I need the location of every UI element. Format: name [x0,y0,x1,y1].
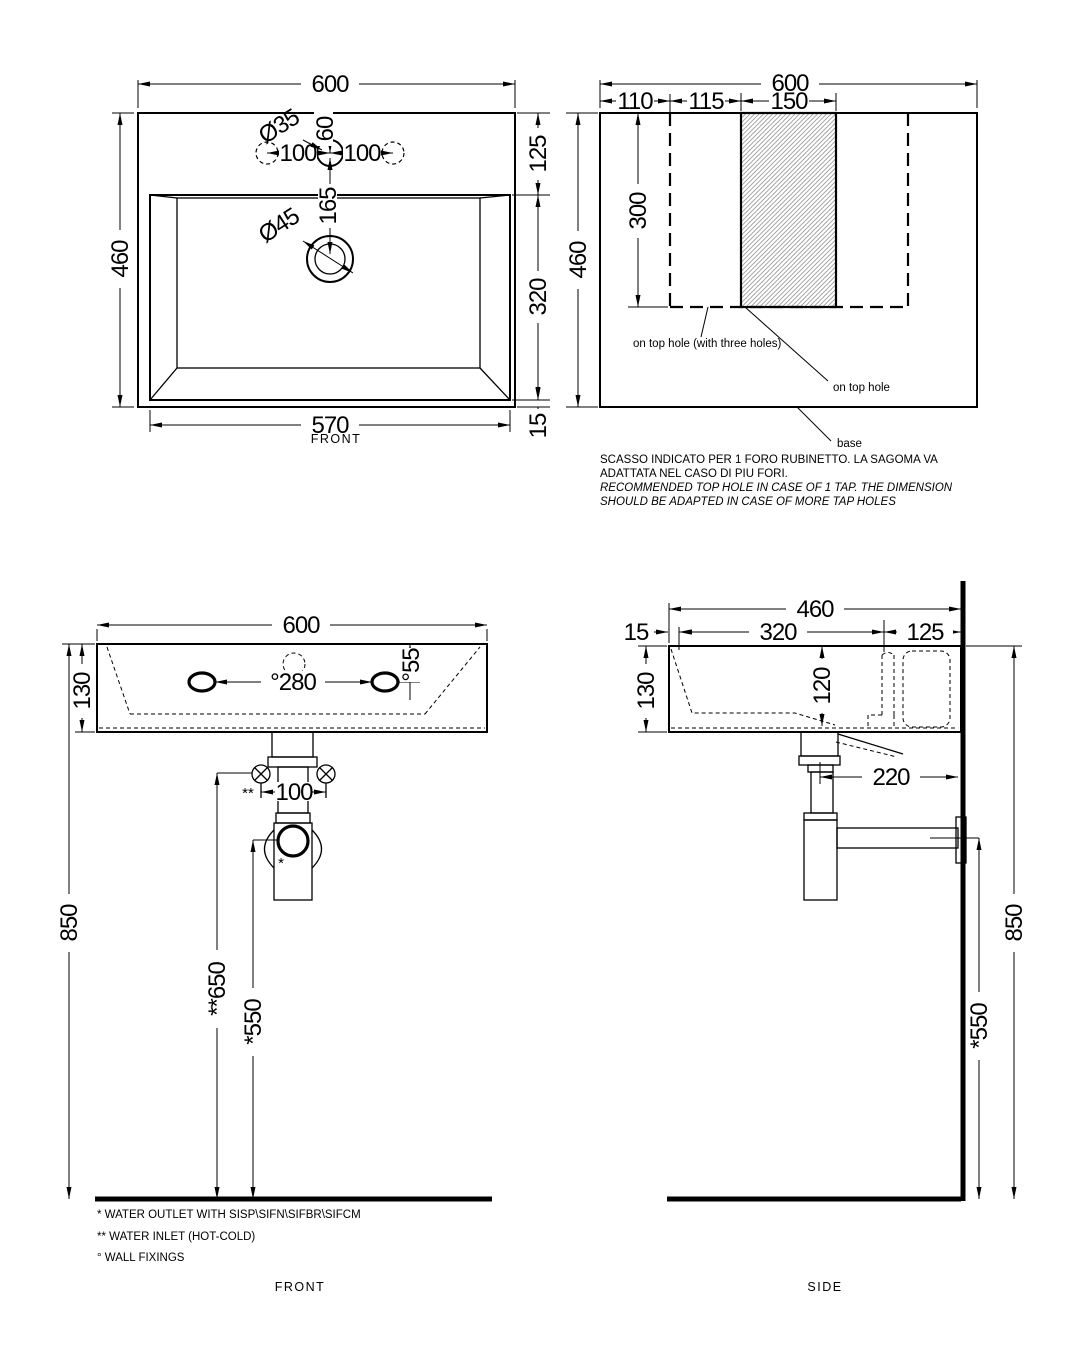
front-dim-outlet-height: *550 [240,999,267,1045]
side-dim-bowl-depth: 120 [809,667,836,705]
plan-label-drain-diameter: Ø45 [254,202,305,248]
front-outlet-marker: * [278,855,284,872]
template-label-three-holes: on top hole (with three holes) [633,338,781,350]
plan-dim-right-bottom: 15 [525,413,552,438]
front-fixing-hole-left [189,673,215,691]
template-label-one-hole: on top hole [833,382,890,394]
technical-drawing-sheet: 600 460 125 320 15 570 FRONT 60 165 [0,0,1080,1350]
template-dim-left: 110 [617,88,653,115]
washbasin-drawing: 600 460 125 320 15 570 FRONT 60 165 [0,0,1080,1350]
front-dim-fixing-depth: °55 [398,648,425,682]
plan-caption: FRONT [311,432,362,446]
front-inlet-marker: ** [242,785,254,802]
side-dim-outlet-wall: 220 [872,764,910,791]
front-note-fixings: ° WALL FIXINGS [97,1252,185,1264]
side-dim-outlet-height: *550 [966,1003,993,1049]
front-water-outlet [278,826,308,856]
side-dim-front-rim: 15 [624,619,649,646]
front-dim-total-height: 850 [56,904,83,942]
side-dim-depth: 460 [796,596,834,623]
template-view: 600 110 115 150 460 300 on top hole (wit… [565,70,977,508]
front-trap [265,732,322,900]
front-caption: FRONT [275,1280,326,1294]
side-dim-bowl: 320 [759,619,797,646]
front-dim-width: 600 [282,612,320,639]
plan-dim-tap-spacing-right: 100 [343,140,381,167]
template-dim-hole: 150 [770,88,808,115]
template-note-en-2: SHOULD BE ADAPTED IN CASE OF MORE TAP HO… [600,496,896,508]
side-caption: SIDE [807,1280,842,1294]
side-rear-channel-hidden [903,651,950,727]
template-note-it-1: SCASSO INDICATO PER 1 FORO RUBINETTO. LA… [600,454,938,466]
plan-dim-width: 600 [311,71,349,98]
side-dim-total-height: 850 [1001,904,1028,942]
side-view: 460 15 320 125 130 120 [624,581,1028,1294]
template-dim-cutout-height: 300 [625,192,652,230]
side-trap [799,732,966,900]
side-dim-back: 125 [906,619,944,646]
plan-dim-tap-drain: 165 [315,187,342,225]
template-note-it-2: ADATTATA NEL CASO DI PIU FORI. [600,468,788,480]
side-tap-hole-hidden [868,653,894,728]
front-note-outlet: * WATER OUTLET WITH SISP\SIFN\SIFBR\SIFC… [97,1209,361,1221]
plan-dim-height: 460 [107,240,134,278]
front-fixing-hole-right [372,673,398,691]
front-dim-fixing-spacing: °280 [270,669,316,696]
plan-dim-right-mid: 320 [525,278,552,316]
plan-basin-outline [138,113,515,407]
template-dim-height: 460 [565,241,592,279]
side-dim-height: 130 [633,672,660,710]
front-dim-inlet-spacing: 100 [275,779,313,806]
front-note-inlet: ** WATER INLET (HOT-COLD) [97,1231,255,1243]
front-view: °280 °55 600 130 850 * [56,612,492,1294]
plan-view: 600 460 125 320 15 570 FRONT 60 165 [107,71,552,446]
front-dim-height: 130 [69,672,96,710]
front-dim-inlet-height: **650 [204,961,231,1015]
template-label-base: base [837,438,862,450]
template-dim-mid: 115 [688,88,724,115]
template-one-hole-cutout [741,113,836,307]
template-note-en-1: RECOMMENDED TOP HOLE IN CASE OF 1 TAP. T… [600,482,953,494]
plan-dim-tap-offset: 60 [312,116,339,141]
plan-dim-right-top: 125 [525,135,552,173]
